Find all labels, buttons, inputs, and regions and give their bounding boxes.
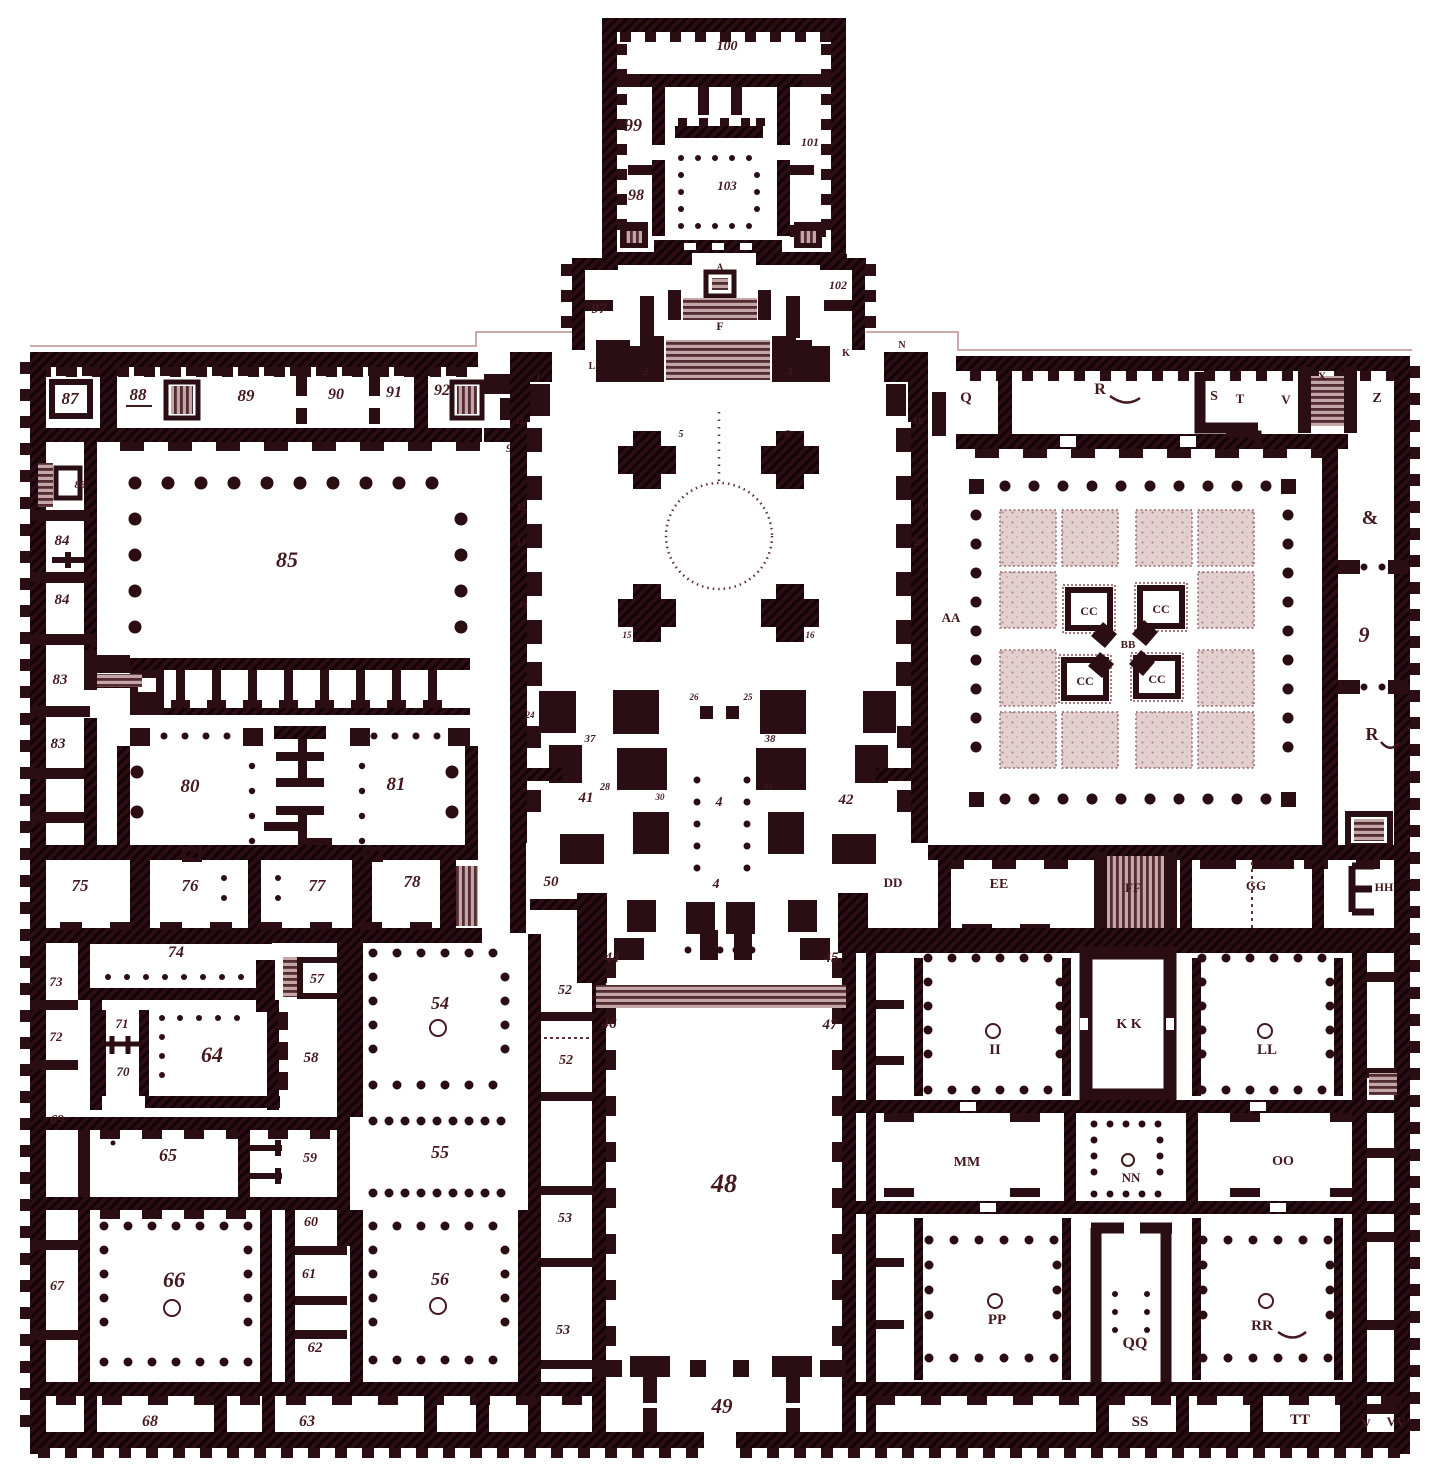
svg-text:67: 67	[50, 1279, 65, 1294]
svg-text:84: 84	[55, 592, 71, 608]
svg-text:N: N	[898, 340, 906, 351]
svg-text:K: K	[842, 348, 850, 359]
svg-text:64: 64	[201, 1042, 223, 1067]
svg-text:56: 56	[431, 1269, 449, 1289]
svg-text:46: 46	[601, 1016, 618, 1032]
svg-text:CC: CC	[1152, 602, 1169, 616]
svg-text:V: V	[1361, 1416, 1371, 1431]
svg-text:71: 71	[116, 1016, 129, 1031]
svg-text:RR: RR	[1251, 1318, 1273, 1334]
svg-text:66: 66	[163, 1267, 185, 1292]
svg-text:HH: HH	[1375, 880, 1394, 894]
svg-text:62: 62	[308, 1340, 324, 1356]
svg-text:47: 47	[822, 1017, 839, 1033]
svg-text:11: 11	[516, 416, 525, 426]
svg-text:4: 4	[715, 795, 723, 810]
svg-text:FF: FF	[1125, 880, 1141, 895]
svg-text:DD: DD	[884, 875, 903, 890]
svg-text:Z: Z	[1372, 391, 1381, 406]
svg-text:70: 70	[117, 1064, 131, 1079]
svg-text:18: 18	[914, 416, 924, 426]
svg-text:&: &	[1362, 507, 1379, 529]
svg-text:1: 1	[535, 371, 541, 383]
svg-text:31: 31	[762, 782, 773, 793]
svg-text:86: 86	[75, 479, 87, 491]
svg-text:14: 14	[519, 600, 529, 610]
svg-text:SS: SS	[1132, 1414, 1149, 1430]
svg-text:90: 90	[328, 386, 344, 403]
svg-text:28: 28	[599, 782, 610, 793]
svg-text:R: R	[1094, 381, 1106, 398]
svg-text:20: 20	[913, 537, 924, 547]
svg-text:5: 5	[679, 429, 684, 440]
svg-text:L: L	[589, 361, 596, 372]
svg-text:X: X	[1318, 369, 1327, 383]
svg-text:53: 53	[556, 1323, 570, 1338]
svg-text:16: 16	[806, 630, 816, 640]
svg-text:81: 81	[387, 774, 406, 795]
svg-text:CC: CC	[1076, 674, 1093, 688]
svg-text:EE: EE	[990, 877, 1009, 892]
svg-text:88: 88	[130, 385, 148, 404]
svg-text:48: 48	[710, 1169, 737, 1198]
svg-text:89: 89	[238, 386, 256, 405]
svg-text:37: 37	[584, 733, 597, 745]
svg-text:65: 65	[159, 1145, 177, 1165]
svg-text:3: 3	[786, 366, 793, 378]
svg-text:59: 59	[303, 1151, 317, 1166]
svg-text:PP: PP	[988, 1312, 1006, 1328]
svg-text:84: 84	[55, 533, 71, 549]
svg-text:VV: VV	[1387, 1414, 1406, 1429]
svg-text:4: 4	[712, 877, 720, 892]
svg-text:41: 41	[578, 790, 594, 806]
svg-text:LL: LL	[1257, 1042, 1277, 1058]
svg-text:87: 87	[62, 389, 81, 408]
svg-text:100: 100	[717, 39, 738, 54]
svg-text:83: 83	[53, 672, 69, 688]
svg-text:69: 69	[50, 1113, 64, 1128]
svg-text:76: 76	[182, 876, 200, 895]
svg-text:R: R	[1366, 724, 1380, 744]
svg-text:QQ: QQ	[1123, 1335, 1148, 1352]
svg-text:BB: BB	[1121, 639, 1136, 651]
svg-text:25: 25	[743, 692, 754, 702]
svg-text:99: 99	[624, 115, 642, 135]
svg-text:68: 68	[142, 1413, 158, 1430]
svg-text:CC: CC	[1080, 604, 1097, 618]
svg-text:77: 77	[309, 876, 328, 895]
svg-text:AA: AA	[942, 610, 961, 625]
svg-text:44: 44	[604, 950, 621, 966]
svg-text:98: 98	[628, 187, 644, 204]
svg-text:9: 9	[1359, 622, 1370, 647]
svg-text:75: 75	[72, 876, 90, 895]
svg-text:61: 61	[302, 1267, 316, 1282]
svg-text:6: 6	[785, 429, 790, 440]
svg-text:OO: OO	[1272, 1154, 1294, 1169]
svg-text:S: S	[1210, 389, 1218, 404]
svg-text:2: 2	[642, 366, 649, 378]
svg-text:57: 57	[310, 972, 325, 987]
svg-text:54: 54	[431, 993, 449, 1013]
svg-text:26: 26	[689, 692, 700, 702]
svg-text:15: 15	[623, 630, 633, 640]
svg-text:GG: GG	[1246, 878, 1266, 893]
svg-text:45: 45	[823, 950, 840, 966]
svg-text:NN: NN	[1122, 1170, 1141, 1185]
svg-text:83: 83	[51, 736, 67, 752]
svg-text:73: 73	[50, 974, 64, 989]
svg-text:58: 58	[304, 1050, 320, 1066]
svg-text:72: 72	[50, 1029, 64, 1044]
svg-text:A: A	[717, 262, 724, 272]
svg-text:91: 91	[386, 384, 402, 401]
svg-text:K K: K K	[1116, 1017, 1141, 1032]
svg-text:V: V	[1281, 392, 1291, 407]
svg-text:60: 60	[304, 1215, 318, 1230]
svg-text:52: 52	[558, 983, 572, 998]
svg-text:F: F	[716, 319, 723, 333]
svg-text:53: 53	[558, 1211, 572, 1226]
svg-text:52: 52	[559, 1053, 573, 1068]
svg-text:MM: MM	[954, 1155, 980, 1170]
svg-text:TT: TT	[1290, 1412, 1310, 1428]
svg-text:101: 101	[801, 135, 819, 149]
svg-text:80: 80	[181, 776, 201, 797]
svg-text:42: 42	[838, 792, 855, 808]
svg-text:92: 92	[434, 382, 450, 399]
svg-text:85: 85	[276, 547, 298, 572]
svg-text:19: 19	[914, 502, 924, 512]
svg-text:63: 63	[299, 1413, 315, 1430]
svg-text:50: 50	[544, 874, 560, 890]
svg-text:30: 30	[655, 792, 666, 802]
svg-text:102: 102	[829, 278, 847, 292]
svg-text:II: II	[989, 1042, 1001, 1058]
svg-text:CC: CC	[1148, 672, 1165, 686]
svg-text:12: 12	[517, 502, 527, 512]
svg-text:13: 13	[517, 537, 527, 547]
svg-text:74: 74	[168, 944, 184, 961]
svg-text:55: 55	[431, 1142, 449, 1162]
svg-text:T: T	[1236, 391, 1245, 406]
svg-text:38: 38	[764, 733, 777, 745]
svg-text:97: 97	[592, 301, 608, 317]
svg-text:103: 103	[717, 178, 737, 193]
svg-text:Q: Q	[960, 390, 972, 406]
svg-text:49: 49	[711, 1394, 734, 1418]
svg-text:78: 78	[404, 872, 422, 891]
